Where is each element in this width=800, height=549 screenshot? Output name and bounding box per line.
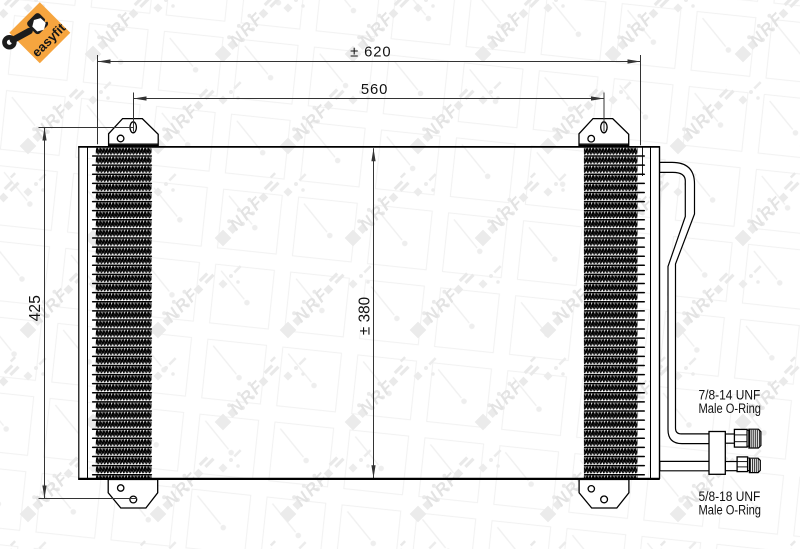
svg-text:± 380: ± 380: [356, 297, 373, 335]
svg-text:Male O-Ring: Male O-Ring: [699, 502, 762, 517]
svg-text:± 620: ± 620: [350, 45, 391, 61]
svg-text:425: 425: [27, 295, 44, 321]
svg-text:560: 560: [361, 82, 388, 98]
svg-text:Male O-Ring: Male O-Ring: [699, 401, 762, 416]
